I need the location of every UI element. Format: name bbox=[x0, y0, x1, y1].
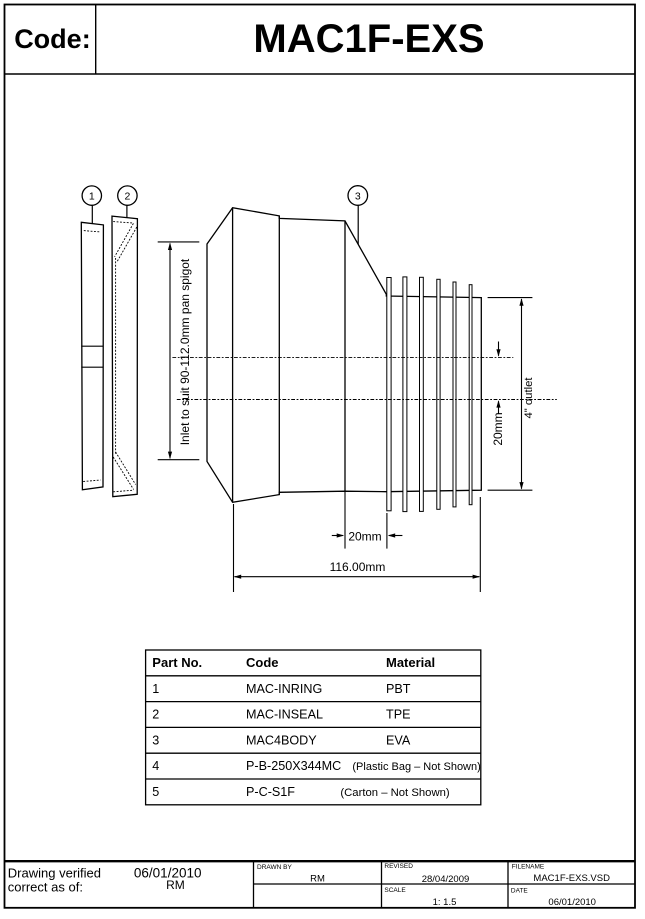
svg-text:DATE: DATE bbox=[511, 888, 529, 895]
svg-text:MAC-INSEAL: MAC-INSEAL bbox=[246, 708, 323, 722]
svg-text:4: 4 bbox=[152, 759, 159, 773]
svg-text:4" outlet: 4" outlet bbox=[523, 377, 535, 419]
svg-text:3: 3 bbox=[152, 733, 159, 747]
svg-text:Code: Code bbox=[246, 655, 279, 670]
svg-text:20mm: 20mm bbox=[348, 530, 381, 544]
svg-text:Part No.: Part No. bbox=[152, 655, 202, 670]
svg-text:20mm: 20mm bbox=[491, 412, 505, 445]
svg-text:MAC1F-EXS.VSD: MAC1F-EXS.VSD bbox=[533, 873, 610, 884]
svg-text:TPE: TPE bbox=[386, 708, 411, 722]
svg-text:1: 1.5: 1: 1.5 bbox=[433, 897, 457, 908]
svg-text:Code:: Code: bbox=[14, 24, 91, 54]
svg-text:(Carton – Not Shown): (Carton – Not Shown) bbox=[340, 787, 449, 799]
svg-text:P-C-S1F: P-C-S1F bbox=[246, 785, 295, 799]
svg-text:5: 5 bbox=[152, 785, 159, 799]
svg-text:2: 2 bbox=[124, 190, 130, 202]
svg-text:MAC-INRING: MAC-INRING bbox=[246, 682, 322, 696]
svg-text:1: 1 bbox=[152, 682, 159, 696]
svg-text:2: 2 bbox=[152, 708, 159, 722]
svg-text:Drawing verified: Drawing verified bbox=[8, 866, 101, 881]
svg-text:MAC1F-EXS: MAC1F-EXS bbox=[253, 17, 484, 61]
svg-text:Material: Material bbox=[386, 655, 435, 670]
svg-text:PBT: PBT bbox=[386, 682, 411, 696]
svg-text:REVISED: REVISED bbox=[384, 863, 413, 870]
svg-text:28/04/2009: 28/04/2009 bbox=[422, 874, 470, 885]
svg-text:EVA: EVA bbox=[386, 733, 411, 747]
svg-text:06/01/2010: 06/01/2010 bbox=[548, 897, 596, 908]
svg-text:DRAWN BY: DRAWN BY bbox=[257, 864, 292, 871]
svg-text:P-B-250X344MC: P-B-250X344MC bbox=[246, 759, 341, 773]
svg-text:116.00mm: 116.00mm bbox=[330, 560, 386, 574]
svg-text:RM: RM bbox=[166, 878, 185, 892]
svg-text:correct as of:: correct as of: bbox=[8, 880, 83, 895]
svg-text:Inlet to suit 90-112.0mm pan s: Inlet to suit 90-112.0mm pan spigot bbox=[178, 258, 192, 445]
svg-text:RM: RM bbox=[310, 874, 325, 885]
svg-text:FILENAME: FILENAME bbox=[512, 864, 545, 871]
svg-text:MAC4BODY: MAC4BODY bbox=[246, 733, 317, 747]
svg-text:1: 1 bbox=[89, 190, 95, 202]
svg-text:(Plastic Bag – Not Shown): (Plastic Bag – Not Shown) bbox=[352, 761, 480, 773]
svg-text:SCALE: SCALE bbox=[384, 887, 406, 894]
svg-text:3: 3 bbox=[355, 190, 361, 202]
